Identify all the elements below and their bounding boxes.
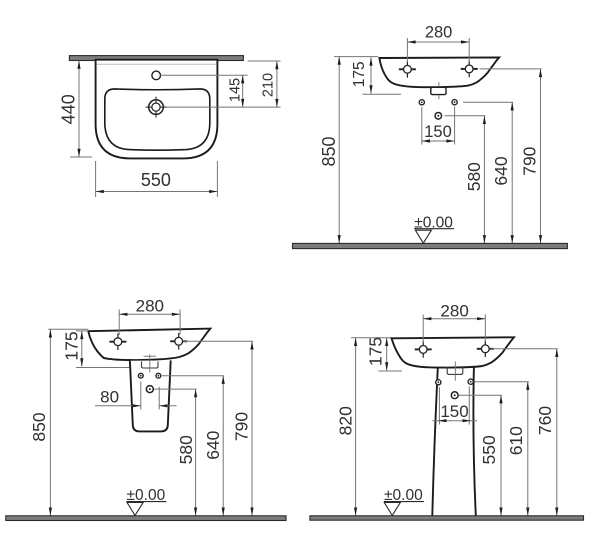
svg-text:820: 820	[336, 406, 356, 435]
svg-text:175: 175	[351, 61, 368, 87]
svg-text:280: 280	[425, 24, 453, 42]
svg-text:150: 150	[440, 402, 468, 421]
svg-text:790: 790	[519, 146, 539, 175]
svg-text:640: 640	[491, 156, 511, 185]
svg-text:850: 850	[29, 412, 49, 441]
svg-text:80: 80	[100, 387, 119, 406]
svg-text:210: 210	[260, 73, 276, 97]
svg-text:610: 610	[506, 426, 526, 455]
svg-text:760: 760	[535, 406, 555, 435]
svg-text:550: 550	[479, 435, 499, 464]
svg-text:850: 850	[319, 136, 339, 166]
svg-text:280: 280	[136, 297, 164, 316]
svg-text:550: 550	[141, 170, 171, 190]
svg-text:580: 580	[464, 162, 484, 191]
svg-text:580: 580	[176, 435, 196, 464]
svg-text:440: 440	[59, 94, 79, 124]
svg-text:640: 640	[203, 430, 223, 459]
svg-text:790: 790	[232, 412, 252, 441]
svg-text:150: 150	[424, 123, 452, 141]
svg-text:280: 280	[440, 301, 468, 320]
svg-text:175: 175	[365, 337, 385, 366]
svg-text:145: 145	[227, 78, 243, 102]
svg-text:175: 175	[61, 331, 81, 360]
